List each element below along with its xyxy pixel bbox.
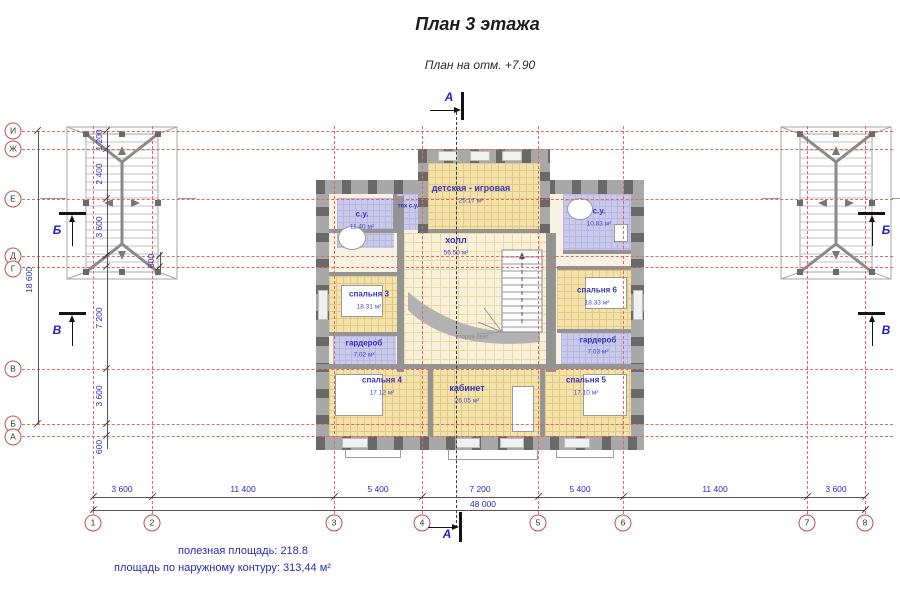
room-area: 7.02 м² xyxy=(353,352,374,359)
axis-bubble-2: 2 xyxy=(144,515,161,532)
window xyxy=(438,151,458,161)
fixture-bathtub xyxy=(567,198,593,220)
section-bar xyxy=(461,92,464,120)
section-mark-b-left: Б xyxy=(53,223,62,237)
footer-useful-area-label: полезная площадь: xyxy=(178,545,277,557)
section-mark-v-right: В xyxy=(882,323,891,337)
dim-line-bottom-total xyxy=(93,510,865,511)
window xyxy=(500,438,524,448)
footer-useful-area-value: 218.8 xyxy=(280,545,308,557)
room-area: 18.31 м² xyxy=(357,304,382,311)
axis-line-v-2 xyxy=(152,126,153,514)
axis-line-v-6 xyxy=(623,126,624,514)
axis-bubble-i: И xyxy=(5,123,22,140)
footer-outer-contour-value: 313,44 м² xyxy=(283,562,331,574)
dim-line-left-chain xyxy=(107,131,108,449)
floor-plan-sheet: План 3 этажа План на отм. +7.90 xyxy=(0,0,900,591)
window xyxy=(633,290,643,320)
axis-bubble-e: Е xyxy=(5,191,22,208)
dim-label: 11 400 xyxy=(702,484,727,494)
wall-interior xyxy=(397,196,404,372)
dim-label: 5 400 xyxy=(367,484,388,494)
room-area: 10.83 м² xyxy=(587,221,612,228)
room-name: кабинет xyxy=(449,384,484,394)
section-arrow-head xyxy=(452,524,459,530)
wall-interior xyxy=(557,329,631,333)
dim-label: 2 400 xyxy=(94,163,104,184)
furniture-desk xyxy=(512,386,534,432)
room-name: с.у. xyxy=(356,211,369,220)
room-area: 17.10 м² xyxy=(574,390,599,397)
axis-bubble-g: Г xyxy=(5,261,22,278)
section-arrow-line xyxy=(428,527,454,528)
page-title: План 3 этажа xyxy=(0,14,900,35)
dim-label: 3 600 xyxy=(94,385,104,406)
dim-label: 600 xyxy=(94,440,104,454)
room-area: 7.03 м² xyxy=(587,349,608,356)
window xyxy=(456,438,480,448)
dim-label: 7 200 xyxy=(94,307,104,328)
room-name: холл xyxy=(445,236,467,246)
window xyxy=(564,438,590,448)
wall-interior xyxy=(428,368,433,436)
dim-line-bottom-chain xyxy=(93,497,865,498)
section-mark-a-top: А xyxy=(445,90,454,104)
dim-label-total-left: 18 600 xyxy=(24,267,34,293)
footer-outer-contour-label: площадь по наружному контуру: xyxy=(114,562,280,574)
balcony xyxy=(345,449,401,458)
axis-line-v-7 xyxy=(807,126,808,514)
room-name: спальня 4 xyxy=(362,377,402,386)
window xyxy=(342,438,368,448)
axis-bubble-v: В xyxy=(5,361,22,378)
fixture-sink xyxy=(614,224,628,242)
section-arrow-head xyxy=(454,107,461,113)
wall-interior xyxy=(428,229,540,233)
axis-bubble-a: А xyxy=(5,429,22,446)
section-arrow-head xyxy=(69,315,75,322)
wall-top-right xyxy=(546,180,644,194)
footer-useful-area: полезная площадь: 218.8 xyxy=(178,545,308,557)
wall-interior xyxy=(546,233,556,372)
page-subtitle: План на отм. +7.90 xyxy=(0,58,900,72)
dim-label: 1 200 xyxy=(94,129,104,150)
dim-label-inner: 600 xyxy=(146,254,156,268)
section-mark-v-left: В xyxy=(53,323,62,337)
room-name: детская - игровая xyxy=(432,184,511,194)
wing-connector-line xyxy=(892,198,900,199)
room-area: 18.33 м² xyxy=(585,300,610,307)
room-playroom xyxy=(428,163,540,233)
wall-right xyxy=(631,194,644,450)
room-name: с.у. xyxy=(593,208,606,217)
wall-interior xyxy=(563,250,631,254)
section-arrow-line xyxy=(72,320,73,346)
axis-line-v-5 xyxy=(538,126,539,514)
wall-playroom-right xyxy=(540,163,550,233)
dim-label: 3 600 xyxy=(825,484,846,494)
balcony xyxy=(448,449,538,460)
dim-label: 7 200 xyxy=(469,484,490,494)
wall-left xyxy=(316,194,329,450)
axis-bubble-3: 3 xyxy=(326,515,343,532)
axis-line-v-8 xyxy=(865,126,866,514)
wall-top-left xyxy=(316,180,428,194)
dim-label: 3 600 xyxy=(111,484,132,494)
wall-playroom-left xyxy=(418,163,428,233)
axis-bubble-zh: Ж xyxy=(5,141,22,158)
axis-bubble-8: 8 xyxy=(857,515,874,532)
second-light-label: второй свет xyxy=(456,335,489,342)
dim-label-total-bottom: 48 000 xyxy=(470,499,496,509)
wall-interior xyxy=(329,332,404,336)
section-mark-b-right: Б xyxy=(882,223,891,237)
axis-line-v-3 xyxy=(334,126,335,514)
room-area: 17.12 м² xyxy=(370,390,395,397)
axis-bubble-7: 7 xyxy=(799,515,816,532)
room-name: гардероб xyxy=(346,340,383,349)
room-name: спальня 3 xyxy=(349,291,389,300)
section-arrow-line xyxy=(872,220,873,246)
section-arrow-head xyxy=(69,215,75,222)
axis-line-v-4 xyxy=(422,126,423,514)
room-area: 56.50 м² xyxy=(444,250,469,257)
wall-interior xyxy=(540,368,545,436)
room-area: 26.05 м² xyxy=(455,398,480,405)
footer-outer-contour-area: площадь по наружному контуру: 313,44 м² xyxy=(114,562,331,574)
section-arrow-head xyxy=(869,215,875,222)
window xyxy=(502,151,522,161)
section-cut-line-a xyxy=(456,112,457,528)
section-mark-a-bottom: А xyxy=(443,527,452,541)
section-arrow-head xyxy=(869,315,875,322)
window xyxy=(470,151,490,161)
dim-label: 3 600 xyxy=(94,216,104,237)
room-area: 11.40 м² xyxy=(350,224,374,231)
dim-label: 5 400 xyxy=(569,484,590,494)
balcony xyxy=(556,449,614,458)
section-arrow-line xyxy=(872,320,873,346)
window xyxy=(318,290,328,320)
axis-bubble-6: 6 xyxy=(615,515,632,532)
section-bar xyxy=(459,512,462,542)
axis-bubble-5: 5 xyxy=(530,515,547,532)
room-name: тех с.у. xyxy=(397,204,419,211)
axis-bubble-4: 4 xyxy=(414,515,431,532)
axis-bubble-1: 1 xyxy=(85,515,102,532)
section-arrow-line xyxy=(430,110,456,111)
room-area: 25.17 м² xyxy=(459,198,484,205)
wall-interior xyxy=(329,272,404,276)
room-name: гардероб xyxy=(580,337,617,346)
room-name: спальня 6 xyxy=(577,287,617,296)
dim-line-left-total xyxy=(38,131,39,424)
dim-label: 11 400 xyxy=(230,484,255,494)
section-arrow-line xyxy=(72,220,73,246)
room-name: спальня 5 xyxy=(566,377,606,386)
